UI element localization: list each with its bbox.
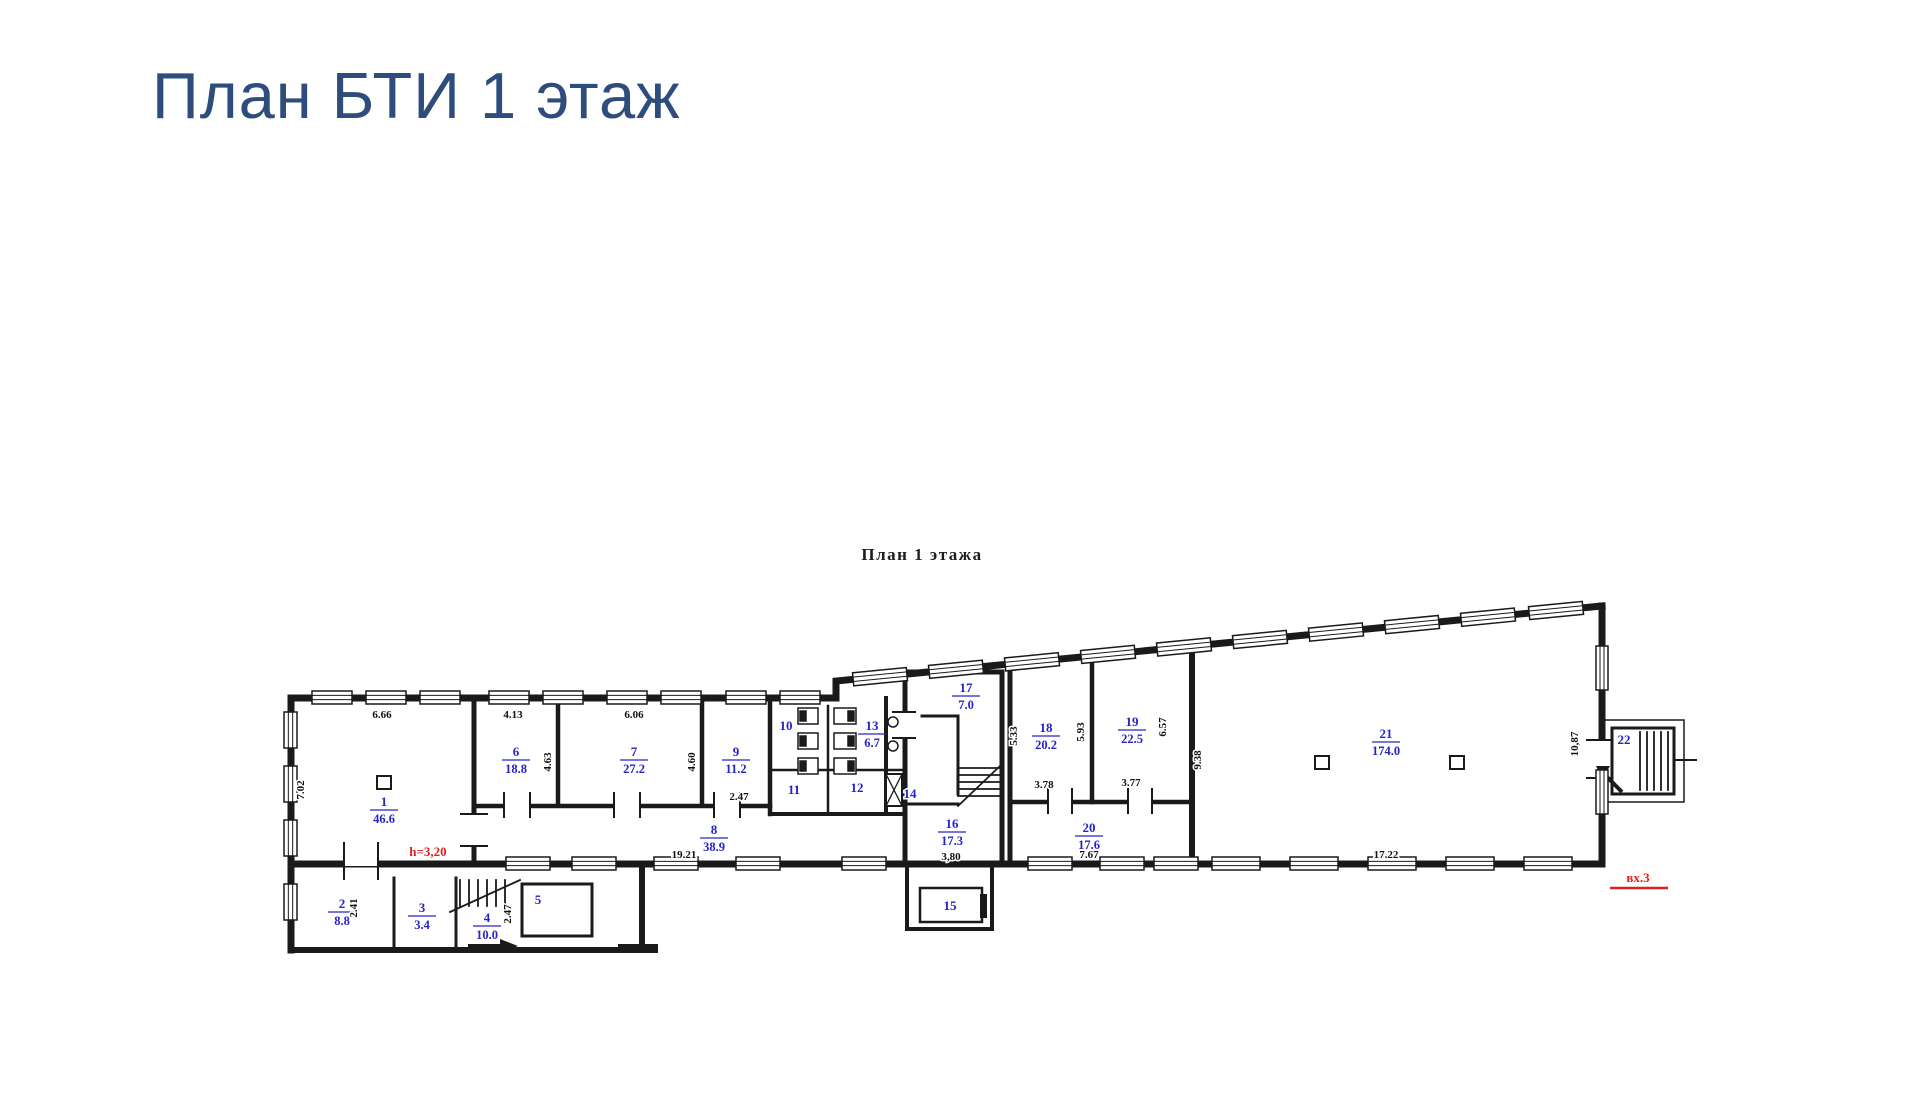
svg-text:13: 13 [866, 718, 880, 733]
room-label-18: 1820.2 [1032, 720, 1060, 752]
room-label-17: 177.0 [952, 680, 980, 712]
windows [284, 601, 1608, 920]
svg-text:10.0: 10.0 [476, 928, 498, 942]
entrance-note: вх.3 [1610, 870, 1668, 888]
floor-plan-svg: План 1 этажа [0, 0, 1920, 1096]
svg-text:19: 19 [1126, 714, 1140, 729]
dimension-label: 4.60 [686, 752, 698, 772]
svg-text:17: 17 [960, 680, 974, 695]
svg-text:20: 20 [1083, 820, 1096, 835]
svg-text:21: 21 [1380, 726, 1393, 741]
room-label-14: 14 [904, 786, 918, 801]
room-label-11: 11 [788, 782, 800, 797]
dimension-label: 10,87 [1569, 731, 1581, 756]
vent-shaft-14 [886, 774, 902, 806]
room-label-6: 618.8 [502, 744, 530, 776]
dimension-label: 6.66 [372, 709, 392, 721]
dimension-label: 7.02 [295, 780, 307, 800]
svg-text:3: 3 [419, 900, 426, 915]
svg-text:7.0: 7.0 [958, 698, 974, 712]
height-note: h=3,20 [409, 844, 446, 859]
dimension-label: 2.41 [348, 898, 360, 917]
svg-text:10: 10 [780, 718, 793, 733]
svg-text:6.7: 6.7 [864, 736, 880, 750]
wc-stalls [798, 708, 898, 774]
svg-text:38.9: 38.9 [703, 840, 725, 854]
svg-text:6: 6 [513, 744, 520, 759]
svg-text:9: 9 [733, 744, 740, 759]
plan-subtitle: План 1 этажа [861, 545, 982, 564]
dimension-label: 4.13 [503, 709, 523, 721]
svg-text:15: 15 [944, 898, 958, 913]
svg-text:17.3: 17.3 [941, 834, 963, 848]
svg-text:11: 11 [788, 782, 800, 797]
room-label-7: 727.2 [620, 744, 648, 776]
room-label-21: 21174.0 [1372, 726, 1400, 758]
svg-text:11.2: 11.2 [725, 762, 746, 776]
door-openings [344, 712, 1612, 953]
dimension-label: 3.77 [1121, 777, 1141, 789]
dimension-label: 9.38 [1192, 750, 1204, 770]
room-label-19: 1922.5 [1118, 714, 1146, 746]
room-label-9: 911.2 [722, 744, 750, 776]
dimension-label: 6.06 [624, 709, 644, 721]
svg-text:18.8: 18.8 [505, 762, 527, 776]
svg-text:22: 22 [1618, 732, 1631, 747]
room-label-12: 12 [851, 780, 864, 795]
dimension-label: 2.47 [729, 791, 749, 803]
dimension-label: 7.67 [1079, 849, 1099, 861]
svg-text:20.2: 20.2 [1035, 738, 1057, 752]
dimension-label: 6.57 [1157, 717, 1169, 737]
dimension-label: 17.22 [1374, 849, 1399, 861]
room-label-20: 2017.6 [1075, 820, 1103, 852]
room-label-5: 5 [535, 892, 542, 907]
fixtures [377, 708, 1464, 918]
room-label-10: 10 [780, 718, 793, 733]
svg-text:4: 4 [484, 910, 491, 925]
svg-text:1: 1 [381, 794, 388, 809]
svg-text:5: 5 [535, 892, 542, 907]
room-label-4: 410.0 [473, 910, 501, 942]
dimension-label: 3,80 [941, 851, 961, 863]
room-label-22: 22 [1618, 732, 1631, 747]
room-label-16: 1617.3 [938, 816, 966, 848]
room-label-13: 136.7 [858, 718, 886, 750]
svg-text:3.4: 3.4 [414, 918, 430, 932]
dimension-label: 5.33 [1008, 726, 1020, 746]
dimension-label: 2.47 [502, 904, 514, 924]
svg-text:12: 12 [851, 780, 864, 795]
svg-text:16: 16 [946, 816, 960, 831]
svg-text:18: 18 [1040, 720, 1054, 735]
dimension-label: 19.21 [672, 849, 697, 861]
svg-text:46.6: 46.6 [373, 812, 395, 826]
svg-text:2: 2 [339, 896, 346, 911]
dimension-label: 4.63 [542, 752, 554, 772]
svg-text:174.0: 174.0 [1372, 744, 1400, 758]
svg-text:8: 8 [711, 822, 718, 837]
room-label-3: 33.4 [408, 900, 436, 932]
walls [291, 606, 1696, 950]
dimension-label: 3.78 [1034, 779, 1054, 791]
svg-text:14: 14 [904, 786, 918, 801]
room-label-15: 15 [944, 898, 958, 913]
dimension-label: 5.93 [1075, 722, 1087, 742]
room-label-1: 146.6 [370, 794, 398, 826]
svg-text:22.5: 22.5 [1121, 732, 1143, 746]
svg-text:7: 7 [631, 744, 638, 759]
room-label-8: 838.9 [700, 822, 728, 854]
svg-text:27.2: 27.2 [623, 762, 645, 776]
svg-text:вх.3: вх.3 [1626, 870, 1650, 885]
slide: План БТИ 1 этаж План 1 этажа [0, 0, 1920, 1096]
